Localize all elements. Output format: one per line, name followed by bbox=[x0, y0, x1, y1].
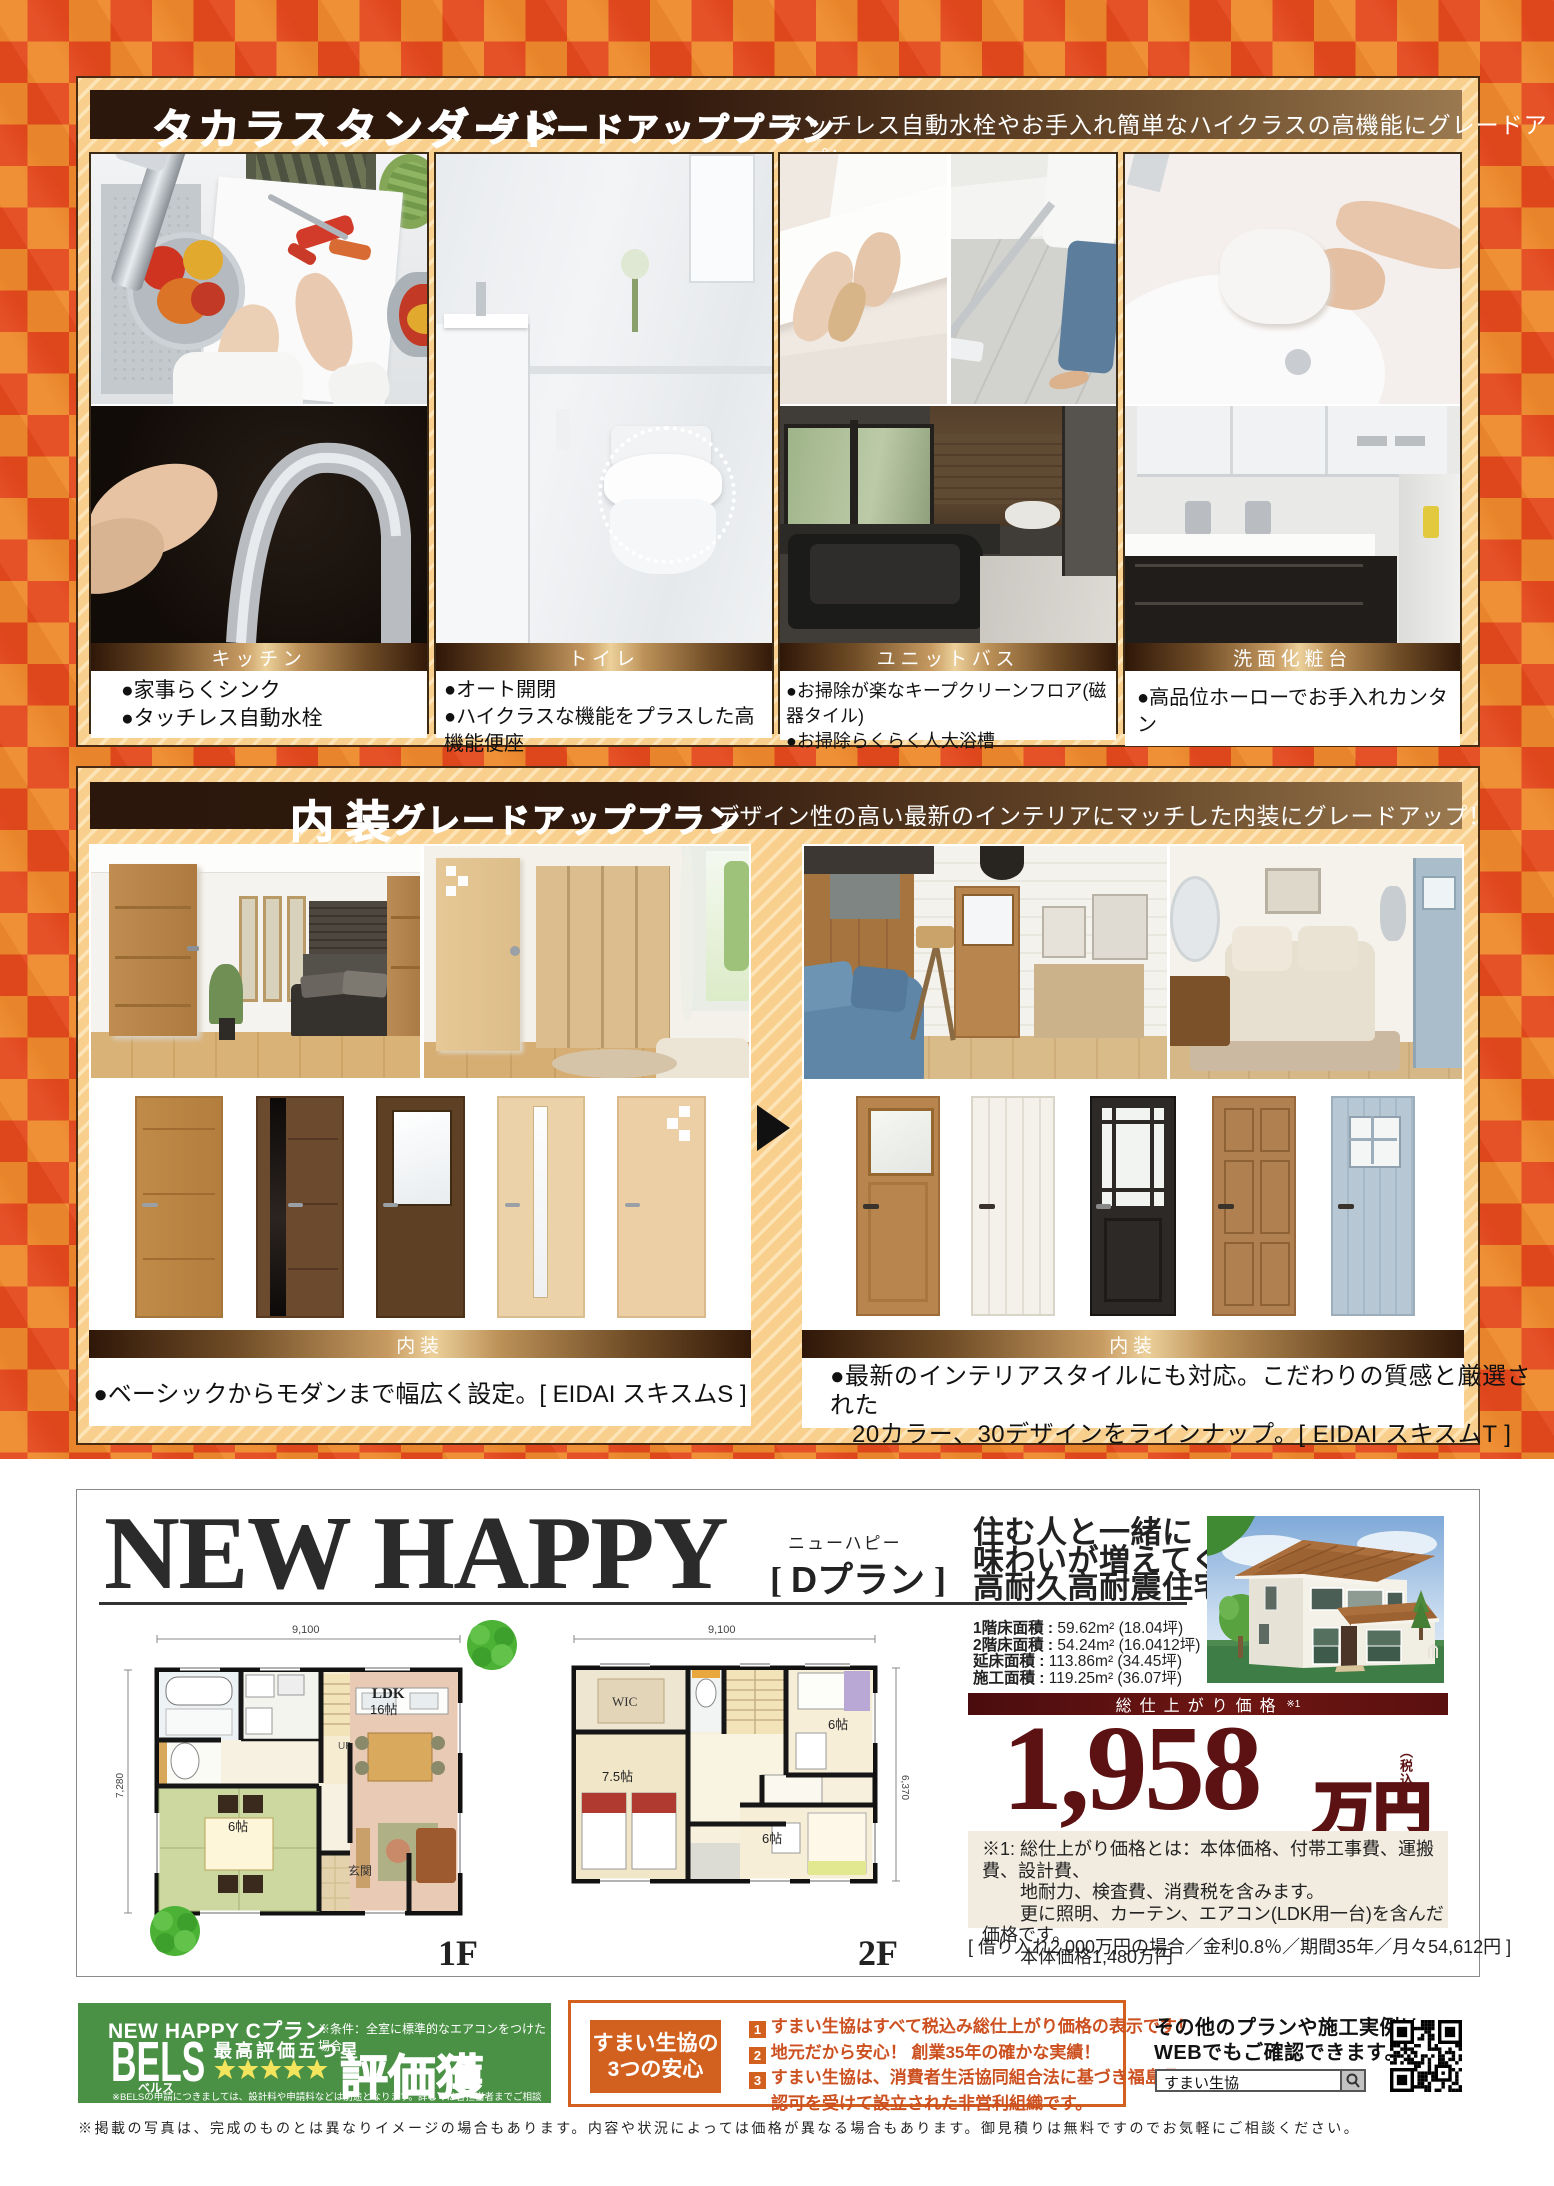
svg-text:9,100: 9,100 bbox=[292, 1624, 320, 1636]
svg-text:16帖: 16帖 bbox=[370, 1702, 397, 1717]
svg-text:7.5帖: 7.5帖 bbox=[602, 1769, 633, 1784]
svg-text:7,280: 7,280 bbox=[115, 1773, 126, 1798]
svg-text:WIC: WIC bbox=[612, 1694, 637, 1709]
svg-text:6帖: 6帖 bbox=[828, 1717, 848, 1732]
svg-text:2F: 2F bbox=[858, 1933, 898, 1973]
svg-text:玄関: 玄関 bbox=[348, 1863, 372, 1878]
svg-text:6帖: 6帖 bbox=[762, 1831, 782, 1846]
svg-text:9,100: 9,100 bbox=[708, 1624, 736, 1636]
svg-text:LDK: LDK bbox=[372, 1686, 405, 1702]
svg-text:6,370: 6,370 bbox=[899, 1775, 910, 1800]
svg-text:1F: 1F bbox=[438, 1933, 478, 1973]
svg-text:6帖: 6帖 bbox=[228, 1819, 248, 1834]
